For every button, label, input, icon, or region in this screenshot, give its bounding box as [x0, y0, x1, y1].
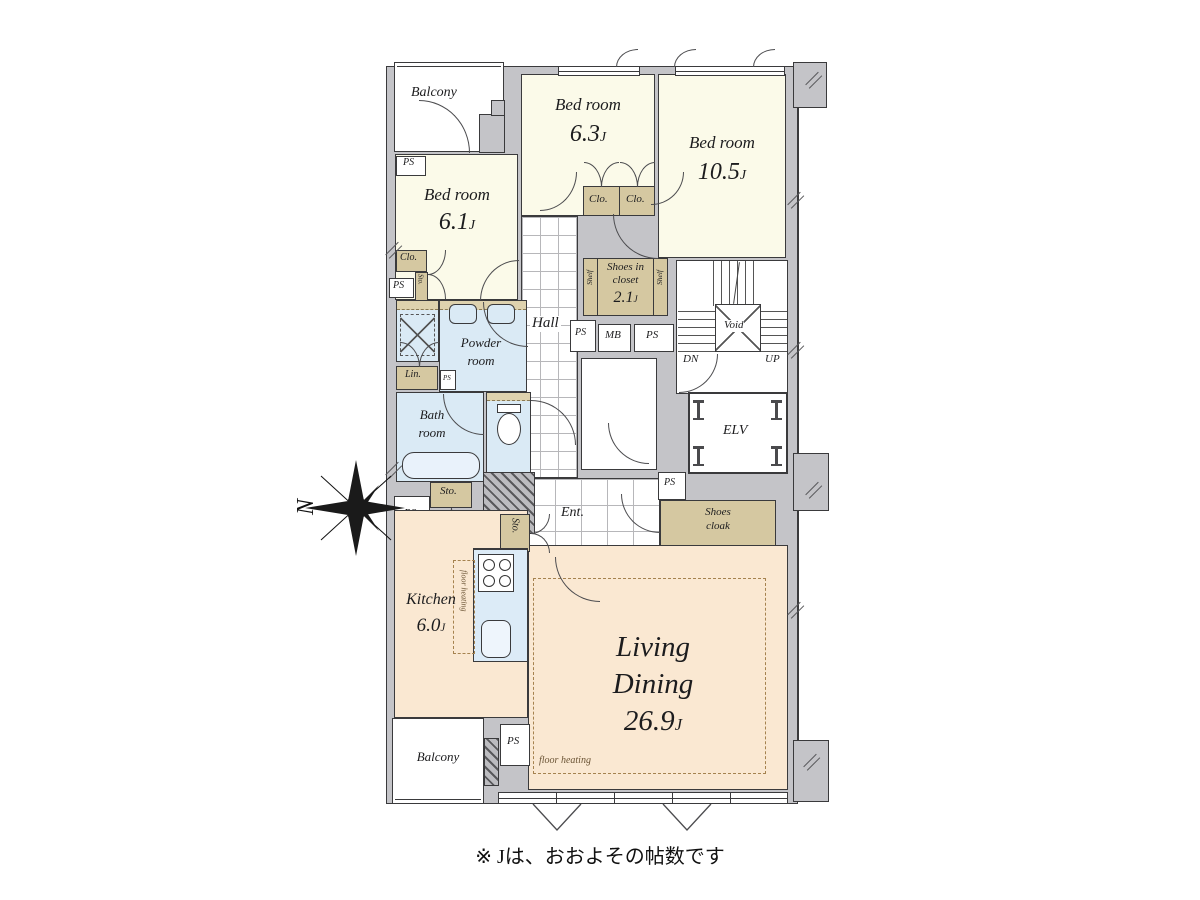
compass-north-label: N: [293, 497, 319, 516]
balcony-step: [479, 114, 505, 153]
bedroom-6-3-name: Bed room: [528, 96, 648, 114]
closet-label: Clo.: [626, 194, 645, 206]
shelf-label: Shelf: [586, 270, 594, 285]
kitchen-name: Kitchen: [391, 592, 471, 609]
powder-room-label2: room: [441, 354, 521, 368]
bedroom-6-1-name: Bed room: [405, 186, 509, 204]
kitchen-size: 6.0J: [391, 616, 471, 636]
storage-label: Sto.: [440, 486, 457, 498]
shoes-in-closet-label2: closet: [598, 275, 653, 287]
hall-label: Hall: [530, 316, 561, 332]
void-label: Void: [724, 320, 744, 332]
mb-label: MB: [605, 330, 621, 342]
page: { "caption": "※ Jは、おおよその帖数です", "unit": "…: [0, 0, 1200, 900]
window-top-1: [558, 66, 640, 76]
awning-window-arc: [616, 49, 638, 67]
elevator-rail-bracket: [697, 400, 700, 420]
ps-label: PS: [646, 330, 658, 342]
sink: [449, 304, 477, 324]
window-top-2: [675, 66, 785, 76]
window-swing-mark: [531, 803, 583, 833]
closet-bed1-label: Clo.: [400, 253, 417, 264]
bath-room-label2: room: [399, 426, 465, 440]
shoes-in-closet-label1: Shoes in: [598, 262, 653, 274]
floor-heating-label: floor heating: [539, 756, 591, 767]
balcony-railing: [395, 799, 481, 800]
outside-area: [798, 511, 840, 740]
wall-hatched-block: [484, 738, 499, 786]
laundry-counter: [397, 301, 438, 310]
living-name1: Living: [553, 632, 753, 662]
ps-label: PS: [575, 328, 586, 339]
wall-bump-top-right: [793, 62, 827, 108]
elevator-label: ELV: [723, 424, 747, 439]
balcony-top-label: Balcony: [411, 86, 457, 101]
wall-bump-bottom-right: [793, 740, 829, 802]
shelf-strip: [653, 258, 654, 316]
awning-window-arc: [674, 49, 696, 67]
toilet-tank: [497, 404, 521, 413]
bathtub: [402, 452, 480, 479]
stair-treads-left: [678, 304, 715, 352]
ps-label: PS: [507, 736, 519, 748]
shoes-in-closet-size: 2.1J: [598, 290, 653, 307]
caption-note: ※ Jは、おおよその帖数です: [0, 840, 1200, 869]
elevator-rail-bracket: [775, 446, 778, 466]
ps-label: PS: [403, 158, 414, 169]
elevator-rail-bracket: [697, 446, 700, 466]
compass-rose: N: [293, 452, 411, 564]
stair-treads-right: [761, 304, 787, 352]
storage-bed1-label: Sto.: [416, 274, 423, 285]
ps-label: PS: [393, 281, 404, 292]
entrance-label: Ent.: [561, 506, 584, 521]
outside-area: [798, 108, 840, 453]
shoes-cloak-label2: cloak: [680, 521, 756, 533]
shelf-label: Shelf: [656, 270, 664, 285]
bedroom-6-1-size: 6.1J: [405, 210, 509, 235]
linen-label: Lin.: [405, 370, 421, 381]
up-label: UP: [765, 354, 780, 366]
stove-burner: [499, 559, 511, 571]
bedroom-10-5-name: Bed room: [663, 134, 781, 152]
toilet-shelf: [487, 393, 530, 401]
balcony-step: [491, 100, 505, 116]
elevator-rail-bracket: [775, 400, 778, 420]
toilet-bowl: [497, 413, 521, 445]
closet-divider: [619, 186, 620, 216]
ps-label: PS: [664, 478, 675, 489]
floor-plan: Balcony PS Bed room 6.1J Clo. Sto. PS Be…: [383, 48, 840, 840]
stove-burner: [483, 575, 495, 587]
wall-bump-mid-right: [793, 453, 829, 511]
stove-burner: [483, 559, 495, 571]
living-size: 26.9J: [553, 706, 753, 736]
storage-label: Sto.: [509, 518, 520, 533]
balcony-railing: [397, 66, 501, 67]
awning-window-arc: [753, 49, 775, 67]
bedroom-6-3-size: 6.3J: [528, 122, 648, 147]
shoes-cloak-label1: Shoes: [680, 507, 756, 519]
balcony-bottom-label: Balcony: [397, 750, 479, 764]
compass-star-main: [305, 460, 405, 556]
kitchen-sink: [481, 620, 511, 658]
stove-burner: [499, 575, 511, 587]
living-name2: Dining: [553, 669, 753, 699]
closet-label: Clo.: [589, 194, 608, 206]
window-swing-mark: [661, 803, 713, 833]
ps-label: PS: [443, 375, 451, 382]
